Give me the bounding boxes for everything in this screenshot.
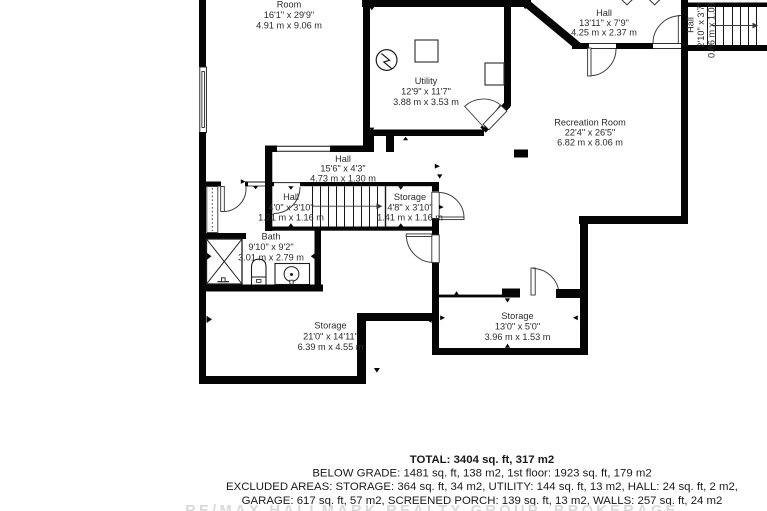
svg-text:6.39 m x 4.55 m: 6.39 m x 4.55 m [298,342,364,352]
svg-text:9'10" x 9'2": 9'10" x 9'2" [248,242,293,252]
svg-text:TOTAL: 3404 sq. ft, 317 m2: TOTAL: 3404 sq. ft, 317 m2 [410,454,555,466]
svg-text:2'10" x 3'7": 2'10" x 3'7" [696,2,706,47]
svg-text:6.82 m x 8.06 m: 6.82 m x 8.06 m [557,138,623,148]
svg-text:Storage: Storage [394,192,426,202]
svg-text:Recreation Room: Recreation Room [554,118,626,128]
svg-text:RE/MAX HALLMARK REALTY GROUP,: RE/MAX HALLMARK REALTY GROUP, BROKERAGE [185,503,679,511]
svg-text:Hall: Hall [596,8,612,18]
svg-text:EXCLUDED AREAS: STORAGE: 364 s: EXCLUDED AREAS: STORAGE: 364 sq. ft, 34 … [226,481,738,493]
svg-text:3.96 m x 1.53 m: 3.96 m x 1.53 m [485,332,551,342]
svg-text:22'4" x 26'5": 22'4" x 26'5" [565,128,615,138]
svg-text:BELOW GRADE: 1481 sq. ft, 138: BELOW GRADE: 1481 sq. ft, 138 m2, 1st fl… [312,468,651,480]
svg-text:21'0" x 14'11": 21'0" x 14'11" [303,332,358,342]
svg-text:Hall: Hall [283,192,299,202]
svg-text:Room: Room [277,0,302,10]
svg-text:0.86 m x 1.09 m: 0.86 m x 1.09 m [707,0,717,58]
svg-text:3.01 m x 2.79 m: 3.01 m x 2.79 m [238,253,304,263]
svg-text:4.73 m x 1.30 m: 4.73 m x 1.30 m [310,174,376,184]
svg-text:Storage: Storage [501,311,533,321]
svg-text:Bath: Bath [262,232,281,242]
svg-text:15'6" x 4'3": 15'6" x 4'3" [320,164,365,174]
svg-text:1.41 m x 1.16 m: 1.41 m x 1.16 m [377,213,443,223]
svg-text:Hall: Hall [335,154,351,164]
svg-text:4.25 m x 2.37 m: 4.25 m x 2.37 m [571,28,637,38]
svg-text:13'11" x 7'9": 13'11" x 7'9" [579,18,629,28]
svg-text:Utility: Utility [415,76,438,86]
svg-text:13'0" x 5'0": 13'0" x 5'0" [495,322,540,332]
svg-text:12'9" x 11'7": 12'9" x 11'7" [401,87,451,97]
svg-text:16'1" x 29'9": 16'1" x 29'9" [264,10,314,20]
svg-text:4'8" x 3'10": 4'8" x 3'10" [387,203,432,213]
svg-text:Hall: Hall [686,17,696,33]
svg-text:4'0" x 3'10": 4'0" x 3'10" [268,203,313,213]
svg-text:Storage: Storage [314,321,346,331]
svg-text:1.21 m x 1.16 m: 1.21 m x 1.16 m [258,213,324,223]
svg-text:4.91 m x 9.06 m: 4.91 m x 9.06 m [256,20,322,30]
svg-text:3.88 m x 3.53 m: 3.88 m x 3.53 m [393,97,459,107]
